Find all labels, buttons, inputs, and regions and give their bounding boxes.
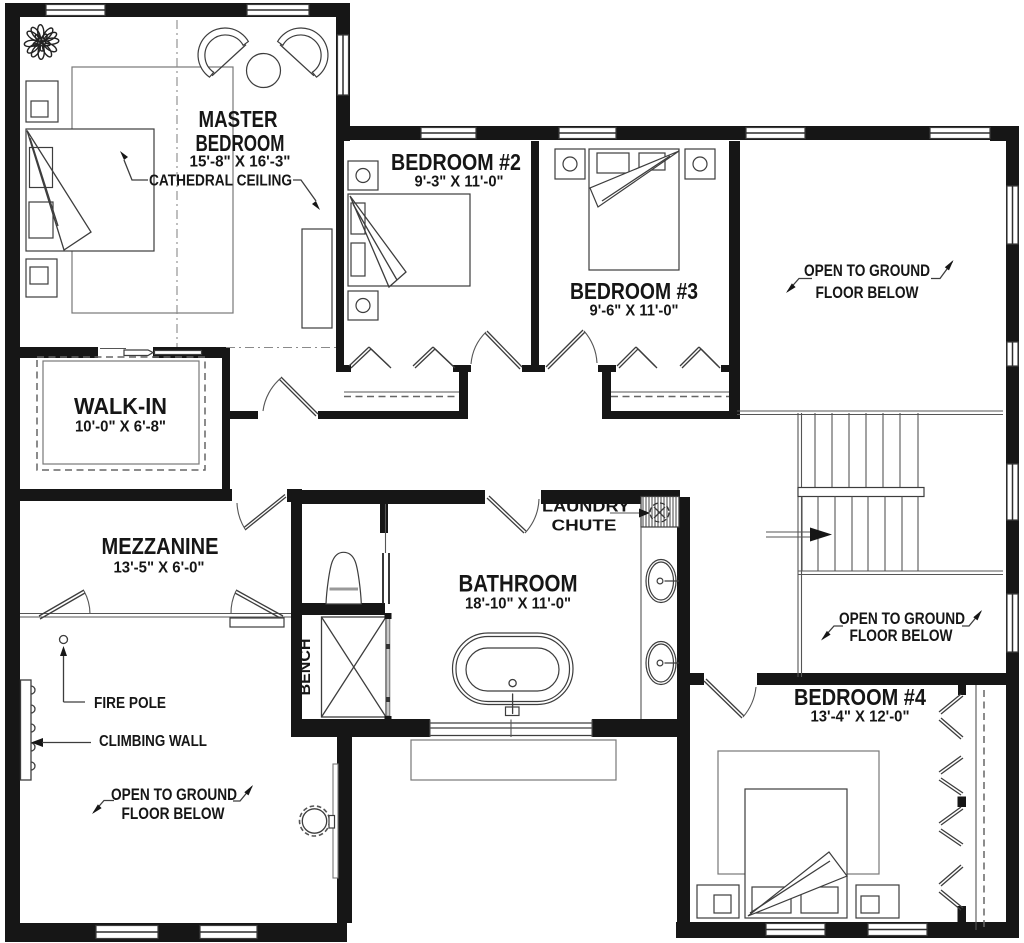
svg-text:OPEN TO GROUND: OPEN TO GROUND [111,785,237,804]
svg-text:BEDROOM: BEDROOM [196,130,285,156]
svg-text:MASTER: MASTER [199,106,278,132]
svg-text:CHUTE: CHUTE [552,518,617,535]
svg-text:9'-3" X 11'-0": 9'-3" X 11'-0" [415,174,504,191]
svg-text:CATHEDRAL CEILING: CATHEDRAL CEILING [149,173,292,190]
svg-text:13'-4" X 12'-0": 13'-4" X 12'-0" [811,709,910,726]
svg-text:WALK-IN: WALK-IN [74,393,167,419]
svg-text:15'-8" X 16'-3": 15'-8" X 16'-3" [190,154,291,171]
svg-text:18'-10" X 11'-0": 18'-10" X 11'-0" [465,596,571,613]
svg-text:CLIMBING WALL: CLIMBING WALL [99,733,207,750]
svg-text:BENCH: BENCH [297,639,314,696]
svg-text:BATHROOM: BATHROOM [459,571,578,598]
svg-text:FLOOR BELOW: FLOOR BELOW [122,804,226,823]
svg-text:OPEN TO GROUND: OPEN TO GROUND [804,261,930,280]
svg-text:FIRE POLE: FIRE POLE [94,695,166,712]
svg-text:FLOOR BELOW: FLOOR BELOW [816,283,920,302]
svg-text:BEDROOM #3: BEDROOM #3 [570,278,698,304]
svg-text:FLOOR BELOW: FLOOR BELOW [850,626,954,645]
svg-text:MEZZANINE: MEZZANINE [102,533,219,559]
svg-text:BEDROOM #4: BEDROOM #4 [794,684,926,710]
svg-text:9'-6" X 11'-0": 9'-6" X 11'-0" [590,303,679,320]
svg-text:13'-5" X 6'-0": 13'-5" X 6'-0" [114,560,205,577]
svg-text:10'-0" X 6'-8": 10'-0" X 6'-8" [75,419,166,436]
svg-text:BEDROOM #2: BEDROOM #2 [391,149,521,175]
